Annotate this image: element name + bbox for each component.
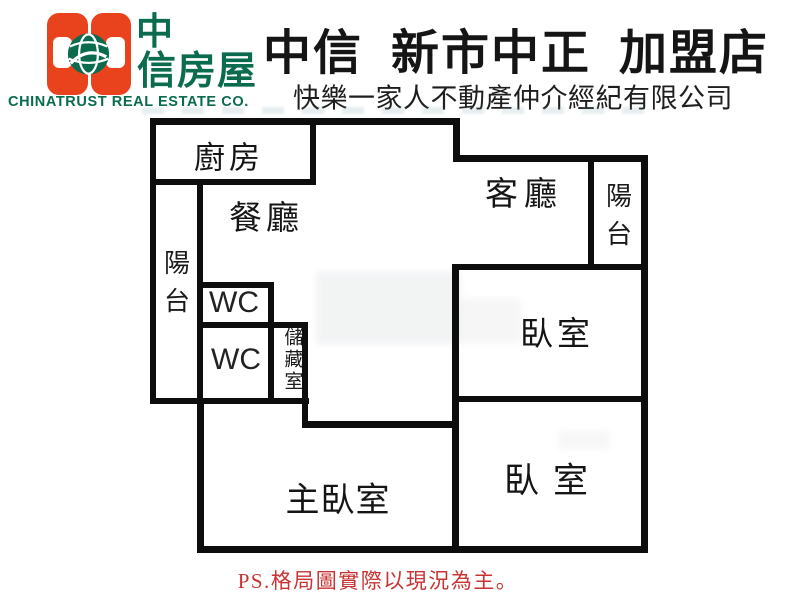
wall-master-top <box>302 421 459 428</box>
room-label-kitchen: 廚房 <box>190 133 264 178</box>
floorplan-flyer: 中 信房屋 CHINATRUST REAL ESTATE CO. 中信 新市中正… <box>0 0 800 600</box>
wall-wc-bottom <box>150 398 309 404</box>
wall-master-left <box>197 398 204 553</box>
room-label-wc2: WC <box>211 343 261 377</box>
wall-balcony-right-divider <box>588 155 594 270</box>
wall-kitchen-bottom <box>150 179 316 185</box>
wall-balcony-left-divider <box>197 179 203 404</box>
wall-living-bottom <box>452 264 648 270</box>
wall-center-vertical <box>452 264 459 553</box>
room-label-bedroom1: 臥室 <box>516 307 594 355</box>
room-label-wc1: WC <box>209 286 259 320</box>
room-label-storage: 儲藏室 <box>283 327 302 393</box>
room-label-balcony-left: 陽台 <box>157 249 194 325</box>
room-label-bedroom2: 臥室 <box>490 453 602 504</box>
wall-storage-right <box>302 322 308 428</box>
wall-kitchen-right <box>310 118 316 185</box>
room-label-balcony-right: 陽台 <box>599 182 636 258</box>
wall-top-b <box>453 155 648 162</box>
room-label-master-bedroom: 主臥室 <box>286 473 391 522</box>
wall-bottom <box>197 546 648 553</box>
wall-top-a <box>150 118 460 125</box>
ps-note: PS.格局圖實際以現況為主。 <box>238 565 519 595</box>
wall-right <box>641 155 648 553</box>
room-label-dining: 餐廳 <box>225 191 303 239</box>
room-label-living: 客廳 <box>479 167 563 215</box>
wall-wc-right <box>268 282 274 404</box>
floorplan-walls <box>0 0 800 600</box>
wall-bedroom-divider <box>452 396 648 402</box>
wall-left-outer <box>150 118 156 404</box>
